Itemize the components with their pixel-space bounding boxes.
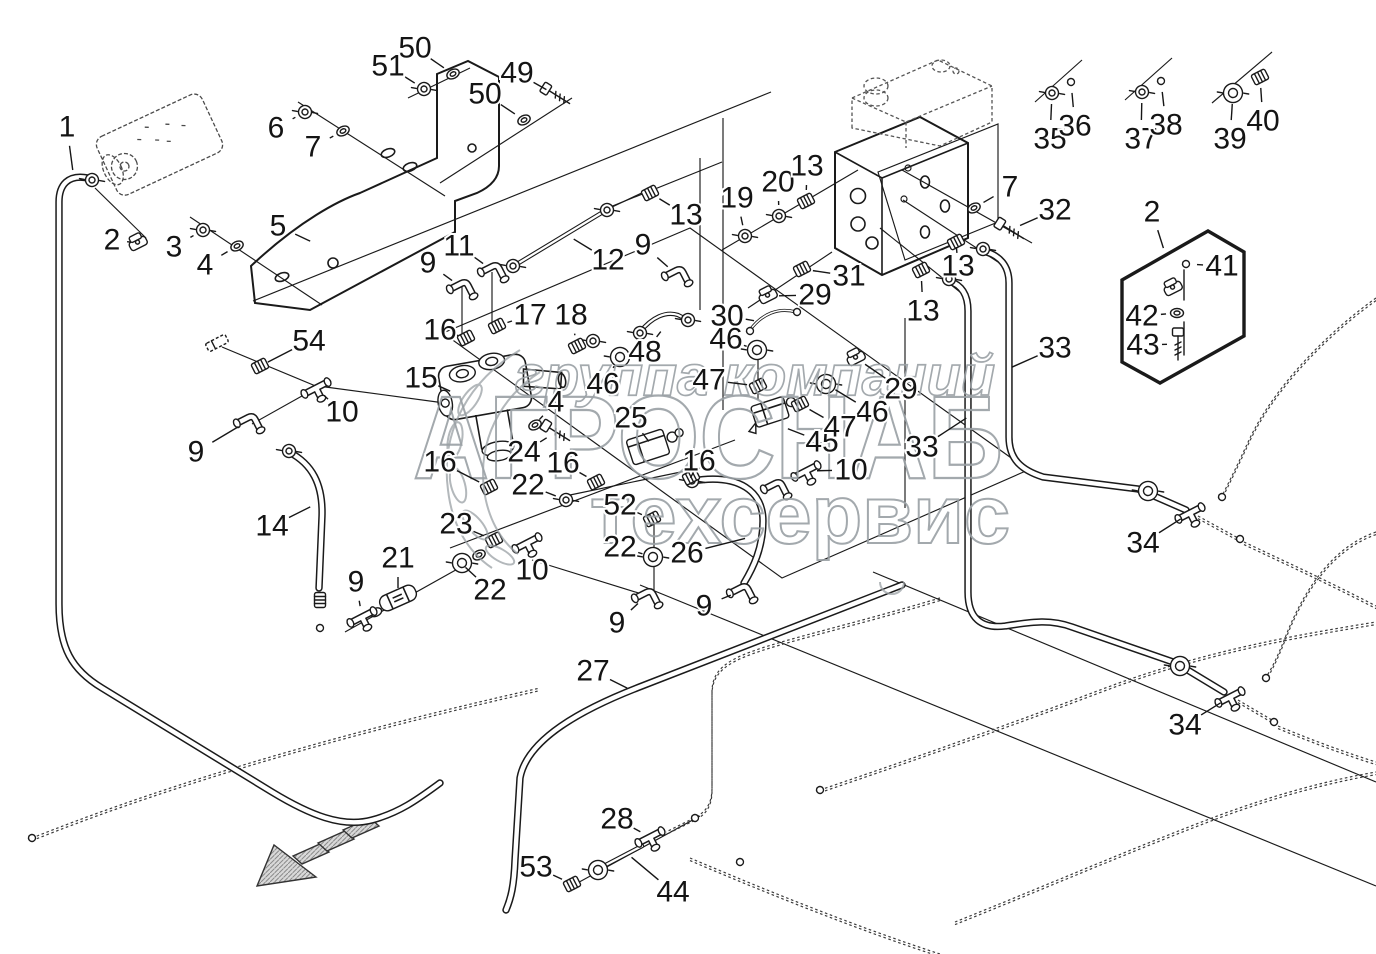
clamp-fitting (756, 284, 778, 305)
bignut-fitting (1217, 78, 1250, 107)
callout-9-leader (443, 274, 452, 280)
callout-41-label: 41 (1205, 250, 1238, 283)
ribbed-fitting (488, 318, 506, 335)
ring-fitting (735, 857, 744, 866)
callout-4-label: 4 (548, 386, 565, 419)
callout-38-label: 38 (1149, 109, 1182, 142)
direction-arrow-icon (257, 818, 379, 886)
callout-50-label: 50 (468, 78, 501, 111)
clamp-fitting (1161, 276, 1183, 297)
callout-40-label: 40 (1246, 105, 1279, 138)
callout-2-label: 2 (104, 224, 121, 257)
bolt-fitting (1173, 328, 1184, 360)
callout-22-label: 22 (473, 574, 506, 607)
callout-46-label: 46 (709, 323, 742, 356)
pump-outline (90, 91, 226, 200)
callout-31-label: 31 (832, 260, 865, 293)
callout-40-leader (1261, 88, 1262, 102)
cap-fitting (205, 334, 229, 352)
bolt-fitting (540, 82, 573, 108)
callout-46-label: 46 (586, 368, 619, 401)
callout-6-label: 6 (268, 112, 285, 145)
elbow-fitting (232, 409, 266, 442)
nut-fitting (675, 309, 700, 331)
callout-43-label: 43 (1126, 329, 1159, 362)
callout-32-label: 32 (1038, 194, 1071, 227)
callout-1-leader (70, 146, 73, 170)
nut-fitting (411, 78, 436, 100)
nut-fitting (1039, 82, 1064, 104)
bignut-fitting (582, 855, 615, 884)
bracket (251, 61, 499, 310)
callout-34-leader (1159, 519, 1181, 533)
callout-16-label: 16 (423, 314, 456, 347)
callout-9-label: 9 (420, 247, 437, 280)
ring-fitting (1066, 77, 1075, 86)
callout-13-label: 13 (790, 150, 823, 183)
bolt-fitting (994, 217, 1027, 243)
callout-36-leader (1072, 93, 1073, 107)
callout-19-leader (741, 217, 743, 226)
callout-4-label: 4 (197, 249, 214, 282)
callout-7-leader (984, 197, 994, 203)
valve-block (835, 60, 998, 275)
callout-23-label: 23 (439, 508, 472, 541)
callout-9-leader (657, 258, 667, 267)
callout-5-label: 5 (270, 210, 287, 243)
nut-fitting (732, 225, 757, 247)
nut-fitting (766, 205, 791, 227)
callout-33-leader (1012, 356, 1038, 367)
callout-16-label: 16 (546, 447, 579, 480)
callout-27-label: 27 (576, 655, 609, 688)
callout-13-label: 13 (669, 199, 702, 232)
callout-11-leader (474, 257, 483, 263)
callout-13-label: 13 (941, 250, 974, 283)
callout-6-leader (293, 117, 296, 119)
ring-fitting (690, 813, 699, 822)
callout-53-label: 53 (519, 851, 552, 884)
callout-24-label: 24 (507, 436, 540, 469)
callout-3-leader (190, 236, 193, 238)
callout-51-leader (404, 76, 415, 83)
callout-16-label: 16 (423, 446, 456, 479)
callout-5-leader (295, 234, 310, 241)
watermark-line3: техсервис (590, 468, 1010, 561)
callout-17-label: 17 (513, 299, 546, 332)
callout-22-label: 22 (603, 531, 636, 564)
callout-9-label: 9 (609, 607, 626, 640)
callout-49-label: 49 (500, 57, 533, 90)
callout-34-label: 34 (1126, 527, 1159, 560)
callout-48-label: 48 (628, 336, 661, 369)
callout-33-label: 33 (905, 431, 938, 464)
clamp-fitting (126, 231, 148, 252)
callout-13-leader (659, 199, 669, 205)
callout-10-label: 10 (515, 554, 548, 587)
callout-16-label: 16 (682, 445, 715, 478)
ring-fitting (1217, 492, 1226, 501)
callout-2-label: 2 (1144, 196, 1161, 229)
callout-27-leader (610, 679, 627, 688)
ribbed-fitting (563, 876, 581, 893)
callout-18-label: 18 (554, 299, 587, 332)
callout-46-leader (744, 345, 747, 346)
callout-10-label: 10 (325, 396, 358, 429)
callout-54-label: 54 (292, 325, 325, 358)
callout-44-leader (632, 857, 659, 880)
callout-9-leader (359, 601, 360, 606)
callout-52-label: 52 (603, 489, 636, 522)
callout-32-leader (1020, 218, 1038, 226)
ring-fitting (315, 623, 324, 632)
callout-14-label: 14 (255, 510, 288, 543)
callout-39-label: 39 (1213, 123, 1246, 156)
callout-34-label: 34 (1168, 709, 1201, 742)
callout-50-leader (501, 105, 515, 114)
callout-12-leader (574, 239, 592, 250)
parts-diagram-svg: группа компаний АГРОСНАБ техсервис 12345… (0, 0, 1376, 954)
ring-fitting (1235, 534, 1244, 543)
washer-fitting (229, 239, 245, 253)
callout-17-leader (507, 321, 512, 323)
elbow-fitting (660, 262, 694, 295)
callout-15-label: 15 (404, 362, 437, 395)
callout-13-leader (922, 281, 923, 292)
ring-fitting (27, 833, 36, 842)
callout-31-leader (813, 271, 830, 274)
callout-33-label: 33 (1038, 332, 1071, 365)
callout-4-leader (221, 252, 227, 256)
ring-fitting (815, 785, 824, 794)
ribbed-fitting (912, 262, 930, 279)
ring-fitting (1181, 259, 1190, 268)
callout-9-label: 9 (696, 590, 713, 623)
callout-47-label: 47 (692, 364, 725, 397)
ring-fitting (1156, 76, 1165, 85)
callout-7-label: 7 (305, 131, 322, 164)
ribbed-fitting (457, 330, 475, 347)
callout-26-label: 26 (670, 537, 703, 570)
callout-39-leader (1231, 104, 1232, 120)
callout-25-label: 25 (614, 402, 647, 435)
callout-7-leader (330, 136, 334, 138)
nut-fitting (594, 199, 619, 221)
washer-fitting (335, 124, 351, 138)
callout-21-label: 21 (381, 542, 414, 575)
callout-10-label: 10 (834, 454, 867, 487)
ring-fitting (1261, 673, 1270, 682)
callout-11-label: 11 (443, 230, 474, 263)
callout-13-label: 13 (906, 295, 939, 328)
callout-9-label: 9 (188, 436, 205, 469)
callout-28-leader (634, 828, 641, 832)
callout-50-leader (431, 59, 444, 68)
callout-1-label: 1 (59, 111, 76, 144)
callout-9-label: 9 (635, 229, 652, 262)
nut-fitting (190, 219, 215, 241)
callout-28-label: 28 (600, 803, 633, 836)
callout-9-label: 9 (348, 566, 365, 599)
callout-51-label: 51 (371, 50, 404, 83)
callout-19-label: 19 (720, 182, 753, 215)
ribbed-fitting (1251, 69, 1269, 86)
callout-44-label: 44 (656, 876, 689, 909)
callout-29-label: 29 (884, 373, 917, 406)
callout-9-leader (212, 427, 238, 443)
ribbed-fitting (315, 593, 326, 608)
callout-46-label: 46 (855, 396, 888, 429)
callout-22-label: 22 (511, 469, 544, 502)
callout-38-leader (1162, 92, 1164, 106)
callout-7-label: 7 (1002, 171, 1019, 204)
washer-fitting (1171, 309, 1184, 318)
callout-35-leader (1051, 104, 1052, 120)
parts-diagram-page: группа компаний АГРОСНАБ техсервис 12345… (0, 0, 1376, 954)
washer-fitting (471, 548, 487, 562)
elbow-fitting (476, 258, 510, 291)
callout-53-leader (553, 875, 562, 879)
callout-3-label: 3 (166, 231, 183, 264)
ribbed-fitting (793, 261, 811, 278)
callout-14-leader (289, 507, 310, 518)
elbow-fitting (630, 584, 664, 617)
callout-9-leader (631, 603, 638, 610)
callout-2-leader (1158, 230, 1164, 248)
callout-29-label: 29 (798, 279, 831, 312)
callout-54-leader (268, 350, 292, 362)
callout-30-leader (746, 319, 754, 320)
ribbed-fitting (797, 193, 815, 210)
callout-36-label: 36 (1058, 110, 1091, 143)
ribbed-fitting (641, 185, 659, 202)
callout-47-label: 47 (823, 411, 856, 444)
callout-12-label: 12 (591, 244, 624, 277)
